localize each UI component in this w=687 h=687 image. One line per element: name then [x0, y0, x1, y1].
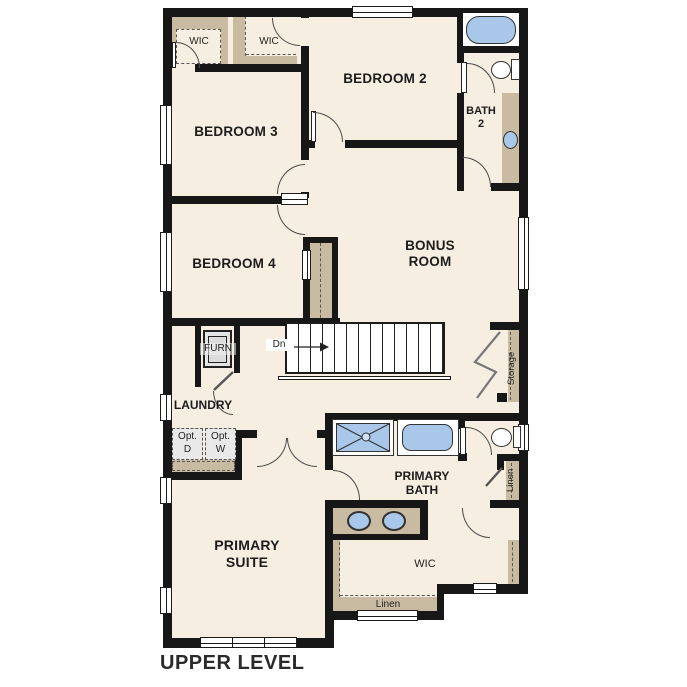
bath2-tub: [466, 16, 516, 44]
label-primary-suite: PRIMARY SUITE: [187, 537, 307, 570]
wall-vanity-north: [330, 500, 428, 508]
primary-shower: [336, 423, 390, 452]
label-bonus-line1: BONUS: [405, 238, 455, 253]
window-bonus-right: [518, 217, 529, 290]
wic-primary-line-left: [339, 542, 341, 597]
label-furn: FURN: [200, 343, 236, 355]
wic-primary-line-right: [512, 542, 514, 582]
window-suite-bottom-mullion-b: [264, 638, 265, 647]
window-wic-bottom-right: [473, 583, 497, 594]
wall-suite-east-b: [325, 500, 333, 648]
primary-tub: [402, 424, 453, 451]
label-wic-primary: WIC: [405, 558, 445, 571]
label-wic-bed2: WIC: [248, 36, 290, 48]
window-bed2-top: [352, 6, 413, 18]
label-opt-w-line2: W: [216, 444, 225, 455]
wall-bed2-south-b: [345, 140, 458, 148]
label-wic-bed3: WIC: [178, 36, 220, 48]
opening-bed4-door: [302, 250, 311, 280]
staircase: [285, 322, 445, 374]
stair-rail: [278, 376, 451, 380]
wall-linen-top: [497, 454, 528, 461]
wall-bath2-south-b: [491, 183, 528, 191]
vanity-counter: [330, 508, 420, 534]
label-opt-d-line2: D: [184, 444, 191, 455]
wall-chase-east: [332, 237, 338, 323]
label-opt-washer: Opt. W: [206, 431, 235, 456]
chase-rod-line: [320, 243, 322, 323]
window-bed3-left: [160, 105, 172, 165]
window-suite-bottom: [200, 637, 297, 648]
window-suite-left-b: [160, 587, 172, 614]
label-bath2-line1: BATH: [466, 105, 496, 117]
label-bath2-line2: 2: [478, 118, 484, 130]
wall-vanity-east: [420, 500, 428, 540]
plan-title: UPPER LEVEL: [160, 652, 304, 675]
label-primary-bath-line2: BATH: [406, 483, 438, 497]
label-bedroom4: BEDROOM 4: [174, 256, 294, 272]
label-primary-suite-line1: PRIMARY: [214, 537, 279, 553]
label-linen-closet: Linen: [505, 463, 519, 498]
wall-laundry-south: [163, 472, 242, 480]
label-stairs-down: Dn: [266, 339, 292, 351]
wall-tub-ledge: [457, 46, 528, 53]
label-primary-suite-line2: SUITE: [226, 554, 268, 570]
label-bedroom3: BEDROOM 3: [176, 124, 296, 140]
label-primary-bath: PRIMARY BATH: [384, 469, 460, 497]
label-opt-d-line1: Opt.: [178, 431, 197, 442]
label-primary-bath-line1: PRIMARY: [395, 469, 450, 483]
laundry-counter-line: [172, 461, 235, 471]
wic-bed2-casework-bottom: [233, 56, 297, 64]
window-bed4-left: [160, 232, 172, 292]
floor-plan: BEDROOM 2 BEDROOM 3 BEDROOM 4 BONUS ROOM…: [0, 0, 687, 687]
vanity-sink-left: [347, 511, 371, 531]
wall-wic-row-bottom: [195, 64, 309, 72]
wall-exterior-left: [163, 8, 172, 648]
bath2-toilet-bowl: [491, 61, 511, 79]
label-opt-w-line1: Opt.: [211, 431, 230, 442]
wall-wic-north-right: [490, 500, 528, 508]
wall-suite-north-b: [317, 430, 333, 438]
label-bedroom2: BEDROOM 2: [325, 71, 445, 87]
primary-toilet-tank: [513, 426, 521, 448]
wall-furn-west: [195, 325, 201, 387]
window-suite-left-a: [160, 477, 172, 504]
primary-toilet-bowl: [491, 428, 512, 447]
opening-hall-bedrooms: [281, 193, 308, 205]
label-linen-shelf: Linen: [358, 599, 418, 611]
label-storage: Storage: [506, 338, 520, 398]
label-bonus-line2: ROOM: [409, 254, 452, 269]
label-opt-dryer: Opt. D: [173, 431, 202, 456]
label-bath2: BATH 2: [455, 105, 507, 131]
label-bonus-room: BONUS ROOM: [380, 238, 480, 270]
wic-bed2-shelf-line: [246, 54, 296, 56]
label-laundry: LAUNDRY: [168, 398, 238, 412]
wic-bed2-rod-line: [245, 16, 247, 56]
bath2-sink: [503, 131, 518, 149]
wall-mid-vert-a: [301, 8, 309, 18]
vanity-sink-right: [382, 511, 406, 531]
wall-storage-top: [490, 322, 528, 330]
window-suite-bottom-mullion-a: [232, 638, 233, 647]
wall-vanity-south: [330, 534, 420, 540]
wall-bed3-bed4-divider: [163, 196, 281, 204]
window-wic-bottom: [357, 610, 418, 621]
bath2-toilet-tank: [511, 59, 520, 80]
wic-primary-line-bottom: [340, 595, 435, 597]
